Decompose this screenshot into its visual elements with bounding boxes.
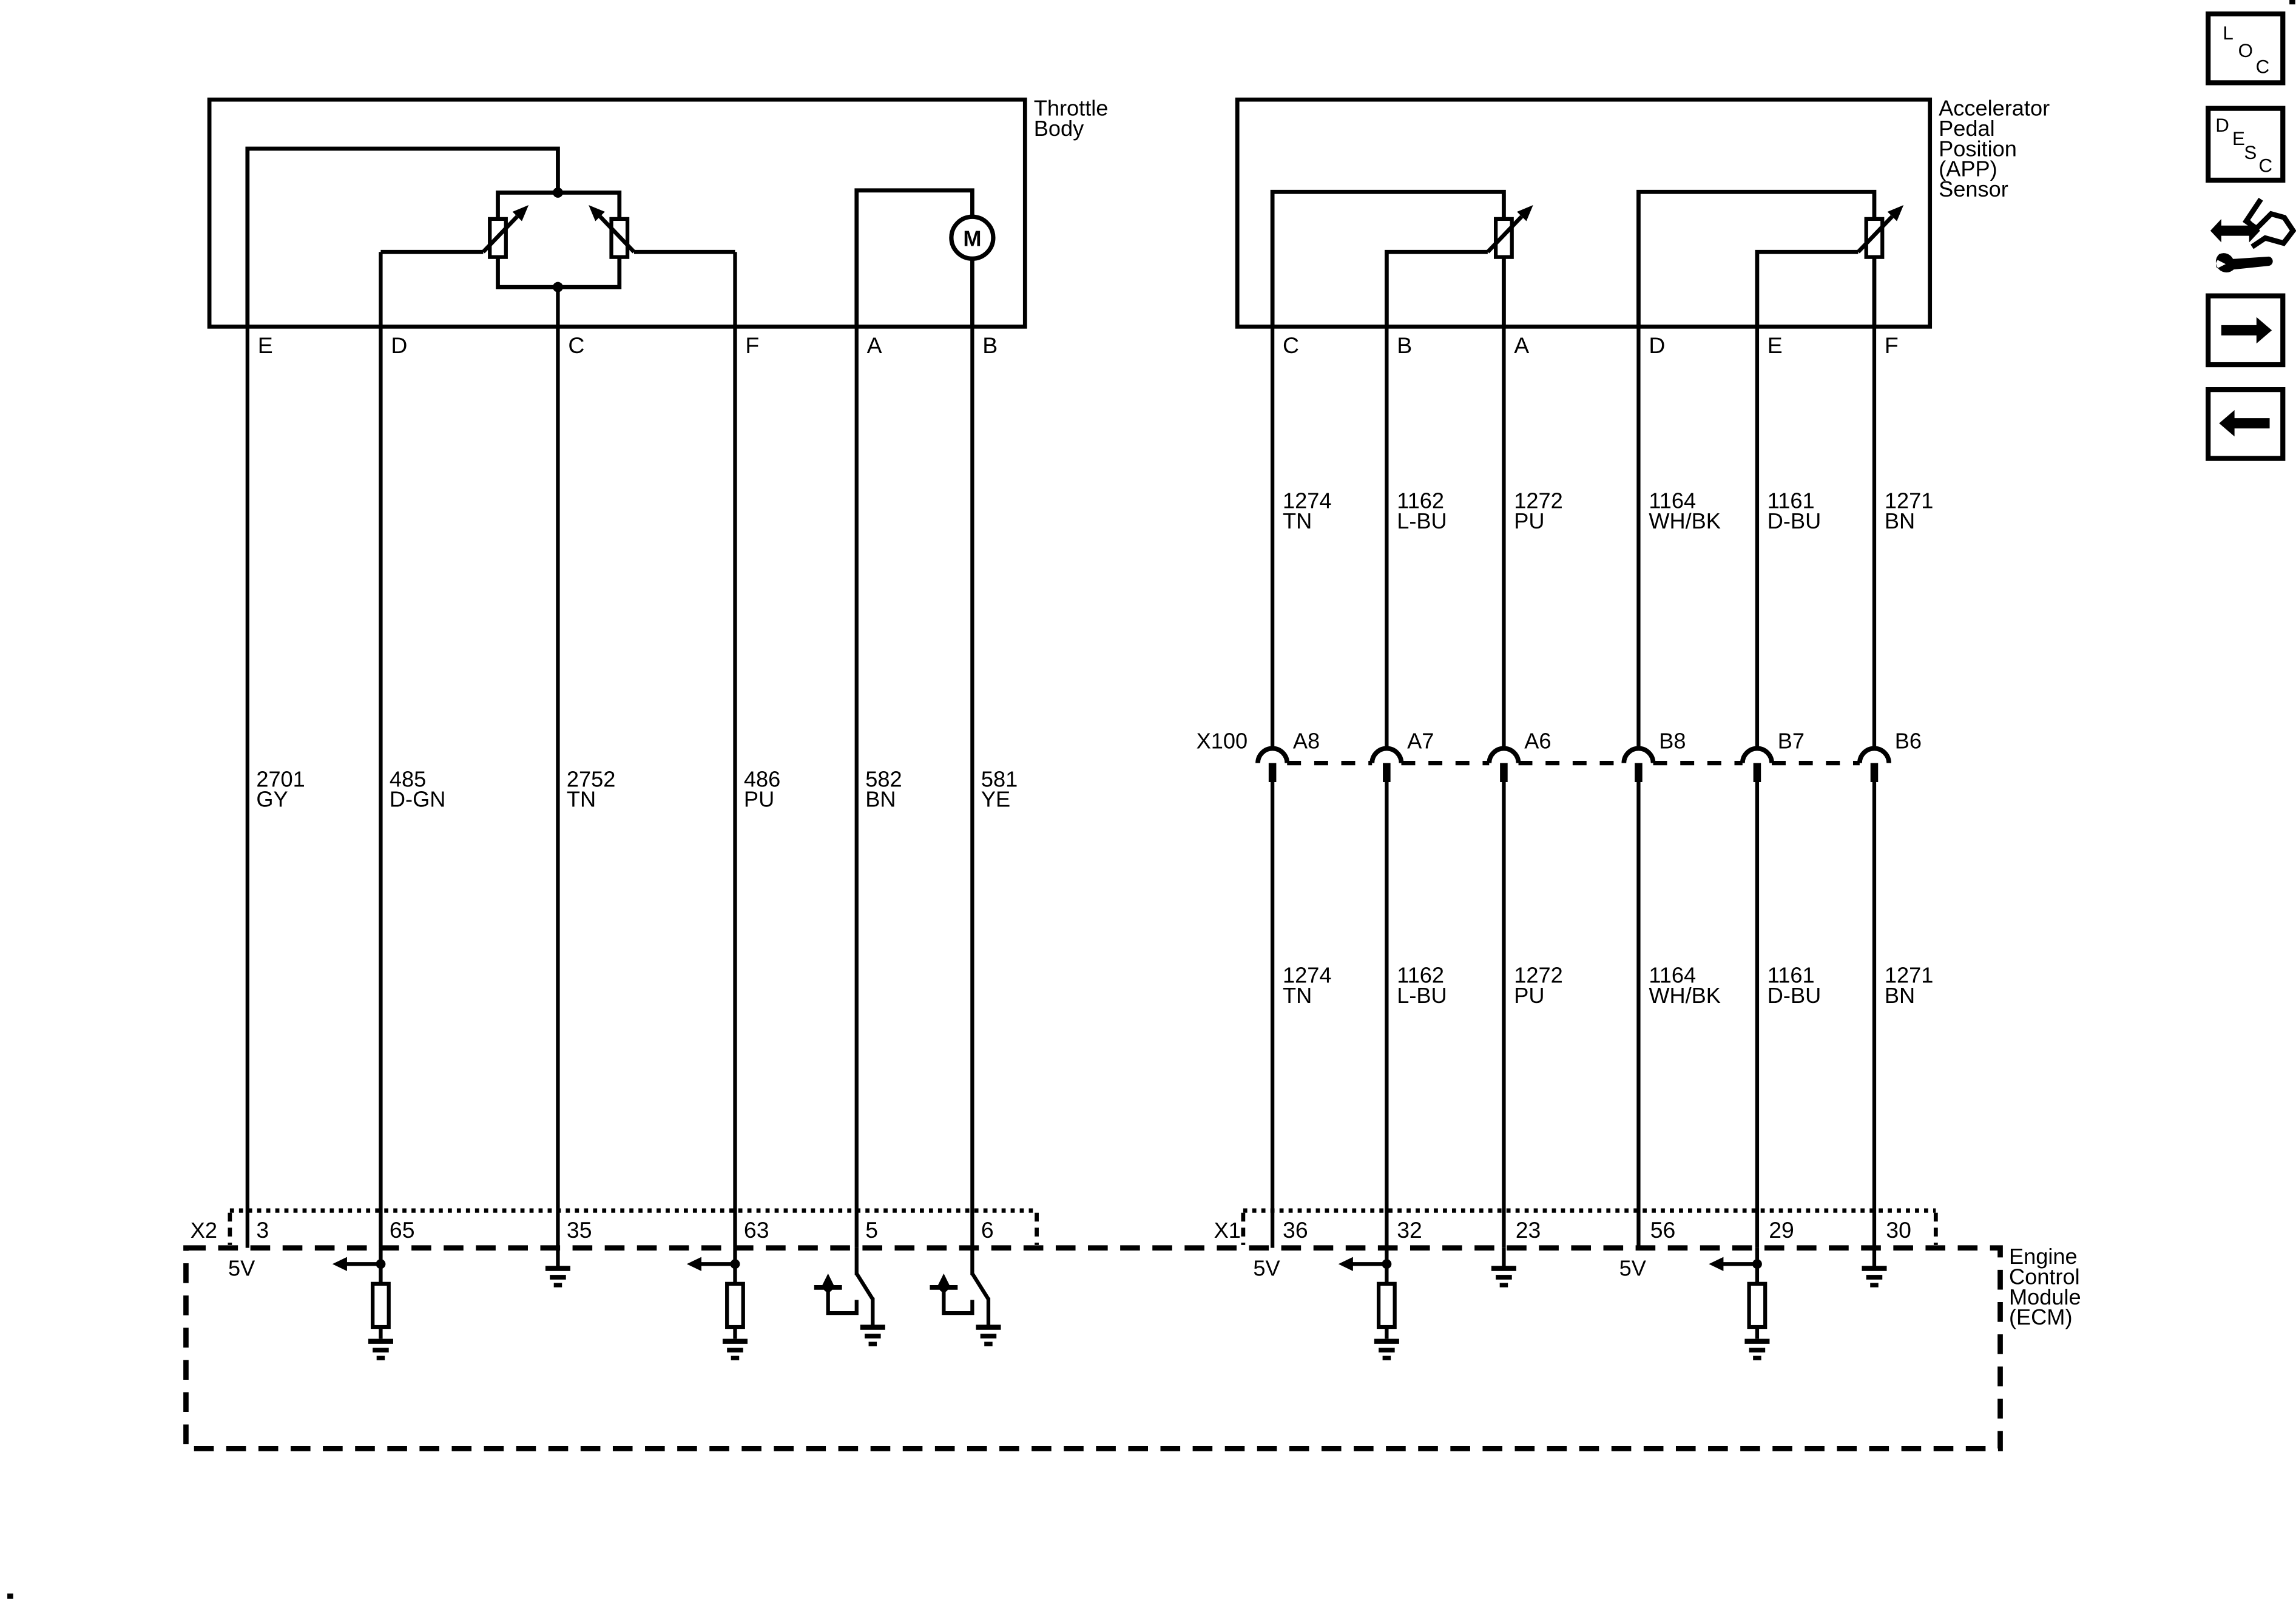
ground-icon [368, 1342, 393, 1359]
motor-feed-trace [857, 191, 973, 326]
desc-button[interactable]: D E S C [2208, 109, 2283, 180]
svg-text:65: 65 [390, 1217, 415, 1243]
svg-text:A: A [1514, 333, 1529, 358]
junction-dot [553, 187, 563, 198]
ground-icon [723, 1342, 748, 1359]
back-button[interactable] [2208, 390, 2283, 458]
x2-connector-label: X2 [191, 1218, 217, 1243]
resistor-icon [1749, 1284, 1766, 1327]
left-harness-wires: 2701 GY 485 D-GN 2752 TN 486 PU 582 BN 5… [248, 252, 1018, 1247]
resistor-icon [727, 1284, 743, 1327]
resistor-icon [1379, 1284, 1395, 1327]
svg-text:D: D [2215, 115, 2229, 136]
pot1-wiper-lead [1386, 252, 1488, 326]
svg-text:C: C [2258, 155, 2272, 177]
svg-text:D: D [1649, 333, 1665, 358]
terminal-arc-icon [1743, 749, 1772, 763]
resistor-icon [373, 1284, 389, 1327]
left-circuit-labels: 2701 GY 485 D-GN 2752 TN 486 PU 582 BN 5… [256, 766, 1018, 811]
app-sensor-component: Accelerator Pedal Position (APP) Sensor … [1237, 96, 2050, 358]
x100-connector-label: X100 [1197, 729, 1248, 754]
svg-text:PU: PU [744, 787, 774, 812]
svg-text:56: 56 [1650, 1217, 1676, 1243]
ground-icon [1862, 1268, 1886, 1285]
svg-text:5: 5 [865, 1217, 878, 1243]
ground-icon [545, 1268, 570, 1285]
svg-text:E: E [258, 333, 273, 358]
x2-pin-numbers: 3 65 35 63 5 6 [256, 1217, 993, 1243]
wiring-diagram-page: Throttle Body M E [0, 0, 2296, 1617]
app-potentiometer-1 [1272, 192, 1533, 326]
svg-text:S: S [2244, 142, 2257, 163]
svg-text:Body: Body [1034, 116, 1084, 141]
harness-outline-icon [2246, 199, 2293, 246]
svg-text:C: C [1283, 333, 1299, 358]
wrench-icon [2216, 253, 2273, 272]
svg-text:C: C [2256, 56, 2270, 78]
motor-letter: M [963, 226, 981, 251]
ecm-driver-pin5 [814, 1248, 885, 1344]
ecm-label: Engine Control Module (ECM) [2009, 1244, 2081, 1329]
signal-arrow-icon [1339, 1257, 1353, 1271]
svg-text:36: 36 [1283, 1217, 1308, 1243]
x2-connector: X2 3 65 35 63 5 6 [191, 1210, 1037, 1245]
svg-text:B: B [982, 333, 998, 358]
app-pin-letters: C B A D E F [1283, 333, 1899, 358]
svg-text:F: F [745, 333, 759, 358]
harness-repair-icon-button[interactable] [2210, 199, 2293, 272]
page-mark-bottom-left [7, 1593, 13, 1598]
ecm-component: Engine Control Module (ECM) 5V 5V 5V [186, 1244, 2081, 1448]
x100-connector: X100 A8 A7 A6 B8 B7 [1197, 729, 1922, 783]
svg-text:23: 23 [1516, 1217, 1541, 1243]
ground-icon [976, 1328, 1001, 1345]
svg-text:L: L [2223, 22, 2233, 44]
svg-text:Sensor: Sensor [1939, 177, 2008, 201]
ecm-ground-pin30 [1862, 1248, 1886, 1285]
svg-text:GY: GY [256, 787, 288, 812]
svg-text:3: 3 [256, 1217, 269, 1243]
svg-text:6: 6 [981, 1217, 994, 1243]
svg-text:D-BU: D-BU [1768, 983, 1821, 1008]
ecm-pullup-pin29 [1709, 1248, 1769, 1359]
signal-arrow-icon [1709, 1257, 1723, 1271]
svg-text:PU: PU [1514, 983, 1544, 1008]
svg-text:PU: PU [1514, 508, 1544, 533]
right-lower-circuit-labels: 1274 TN 1162 L-BU 1272 PU 1164 WH/BK 116… [1283, 963, 1933, 1008]
svg-text:(ECM): (ECM) [2009, 1305, 2073, 1329]
up-arrow-icon [937, 1274, 951, 1288]
ground-icon [860, 1328, 885, 1345]
terminal-arc-icon [1258, 749, 1287, 763]
svg-text:TN: TN [1283, 508, 1312, 533]
svg-text:E: E [1768, 333, 1783, 358]
svg-text:A6: A6 [1524, 729, 1551, 754]
pot2-wiper-lead [1757, 252, 1859, 326]
tps-5v-feed-trace [248, 149, 558, 326]
loc-button[interactable]: L O C [2208, 14, 2283, 83]
driver-diagonal [972, 1274, 988, 1299]
svg-text:BN: BN [1885, 508, 1915, 533]
svg-text:B8: B8 [1659, 729, 1686, 754]
tps-bridge [498, 192, 620, 287]
svg-text:WH/BK: WH/BK [1649, 983, 1721, 1008]
throttle-body-box [209, 100, 1025, 326]
app-potentiometer-2 [1638, 192, 1903, 326]
throttle-body-component: Throttle Body M E [209, 96, 1108, 358]
ground-icon [1374, 1342, 1399, 1359]
terminal-arc-icon [1860, 749, 1889, 763]
app-sensor-box [1237, 100, 1930, 326]
terminal-arc-icon [1489, 749, 1518, 763]
svg-text:BN: BN [865, 787, 896, 812]
svg-text:C: C [568, 333, 584, 358]
x1-pin-numbers: 36 32 23 56 29 30 [1283, 1217, 1911, 1243]
svg-text:35: 35 [567, 1217, 592, 1243]
ecm-pullup-pin63 [687, 1248, 748, 1359]
tps-potentiometer-2 [589, 205, 735, 257]
svg-text:TN: TN [567, 787, 596, 812]
svg-text:A7: A7 [1407, 729, 1434, 754]
svg-text:B7: B7 [1778, 729, 1805, 754]
5v-supply-label: 5V [1619, 1256, 1646, 1281]
terminal-arc-icon [1624, 749, 1653, 763]
driver-loop-icon [814, 1274, 857, 1313]
driver-diagonal [857, 1274, 873, 1299]
svg-text:D-BU: D-BU [1768, 508, 1821, 533]
signal-arrow-icon [687, 1257, 701, 1271]
throttle-pin-letters: E D C F A B [258, 333, 998, 358]
svg-text:YE: YE [981, 787, 1010, 812]
tps-potentiometer-1 [380, 205, 528, 257]
throttle-motor: M [857, 191, 993, 326]
svg-text:D: D [391, 333, 407, 358]
svg-text:TN: TN [1283, 983, 1312, 1008]
svg-text:O: O [2238, 40, 2253, 61]
right-harness-wires: 1274 TN 1162 L-BU 1272 PU 1164 WH/BK 116… [1272, 326, 1933, 1247]
svg-text:WH/BK: WH/BK [1649, 508, 1721, 533]
nav-icon-panel: L O C D E S C [2208, 14, 2293, 459]
terminal-arc-icon [1372, 749, 1401, 763]
svg-text:B: B [1397, 333, 1412, 358]
svg-text:A8: A8 [1293, 729, 1320, 754]
app-sensor-label: Accelerator Pedal Position (APP) Sensor [1939, 96, 2050, 201]
page-mark-top-right [2289, 0, 2295, 4]
ecm-box [186, 1248, 2000, 1449]
svg-text:30: 30 [1886, 1217, 1911, 1243]
wiring-diagram: Throttle Body M E [0, 0, 2296, 1617]
svg-text:D-GN: D-GN [390, 787, 445, 812]
5v-supply-label: 5V [228, 1256, 255, 1281]
ecm-driver-pin6 [930, 1248, 1001, 1344]
svg-text:B6: B6 [1895, 729, 1922, 754]
ground-icon [1744, 1342, 1769, 1359]
5v-supply-label: 5V [1253, 1256, 1280, 1281]
x1-connector-label: X1 [1214, 1218, 1241, 1243]
svg-text:F: F [1885, 333, 1899, 358]
ground-icon [1491, 1268, 1516, 1285]
right-upper-circuit-labels: 1274 TN 1162 L-BU 1272 PU 1164 WH/BK 116… [1283, 488, 1933, 533]
double-arrow-icon [2210, 219, 2260, 243]
throttle-body-label: Throttle Body [1034, 96, 1109, 141]
svg-text:L-BU: L-BU [1397, 508, 1447, 533]
svg-text:A: A [867, 333, 882, 358]
svg-text:32: 32 [1397, 1217, 1422, 1243]
svg-text:L-BU: L-BU [1397, 983, 1447, 1008]
svg-text:BN: BN [1885, 983, 1915, 1008]
ecm-pullup-pin32 [1339, 1248, 1399, 1359]
driver-loop-icon [930, 1274, 972, 1313]
x100-terminals [1258, 749, 1889, 783]
svg-text:63: 63 [744, 1217, 769, 1243]
signal-arrow-icon [333, 1257, 347, 1271]
svg-text:E: E [2232, 128, 2245, 149]
svg-text:29: 29 [1769, 1217, 1794, 1243]
up-arrow-icon [821, 1274, 835, 1288]
ecm-ground-pin23 [1491, 1248, 1516, 1285]
x1-connector: X1 36 32 23 56 29 30 [1214, 1210, 1936, 1245]
ecm-pullup-pin65 [333, 1248, 393, 1359]
ecm-ground-pin35 [545, 1248, 570, 1285]
forward-button[interactable] [2208, 296, 2283, 365]
